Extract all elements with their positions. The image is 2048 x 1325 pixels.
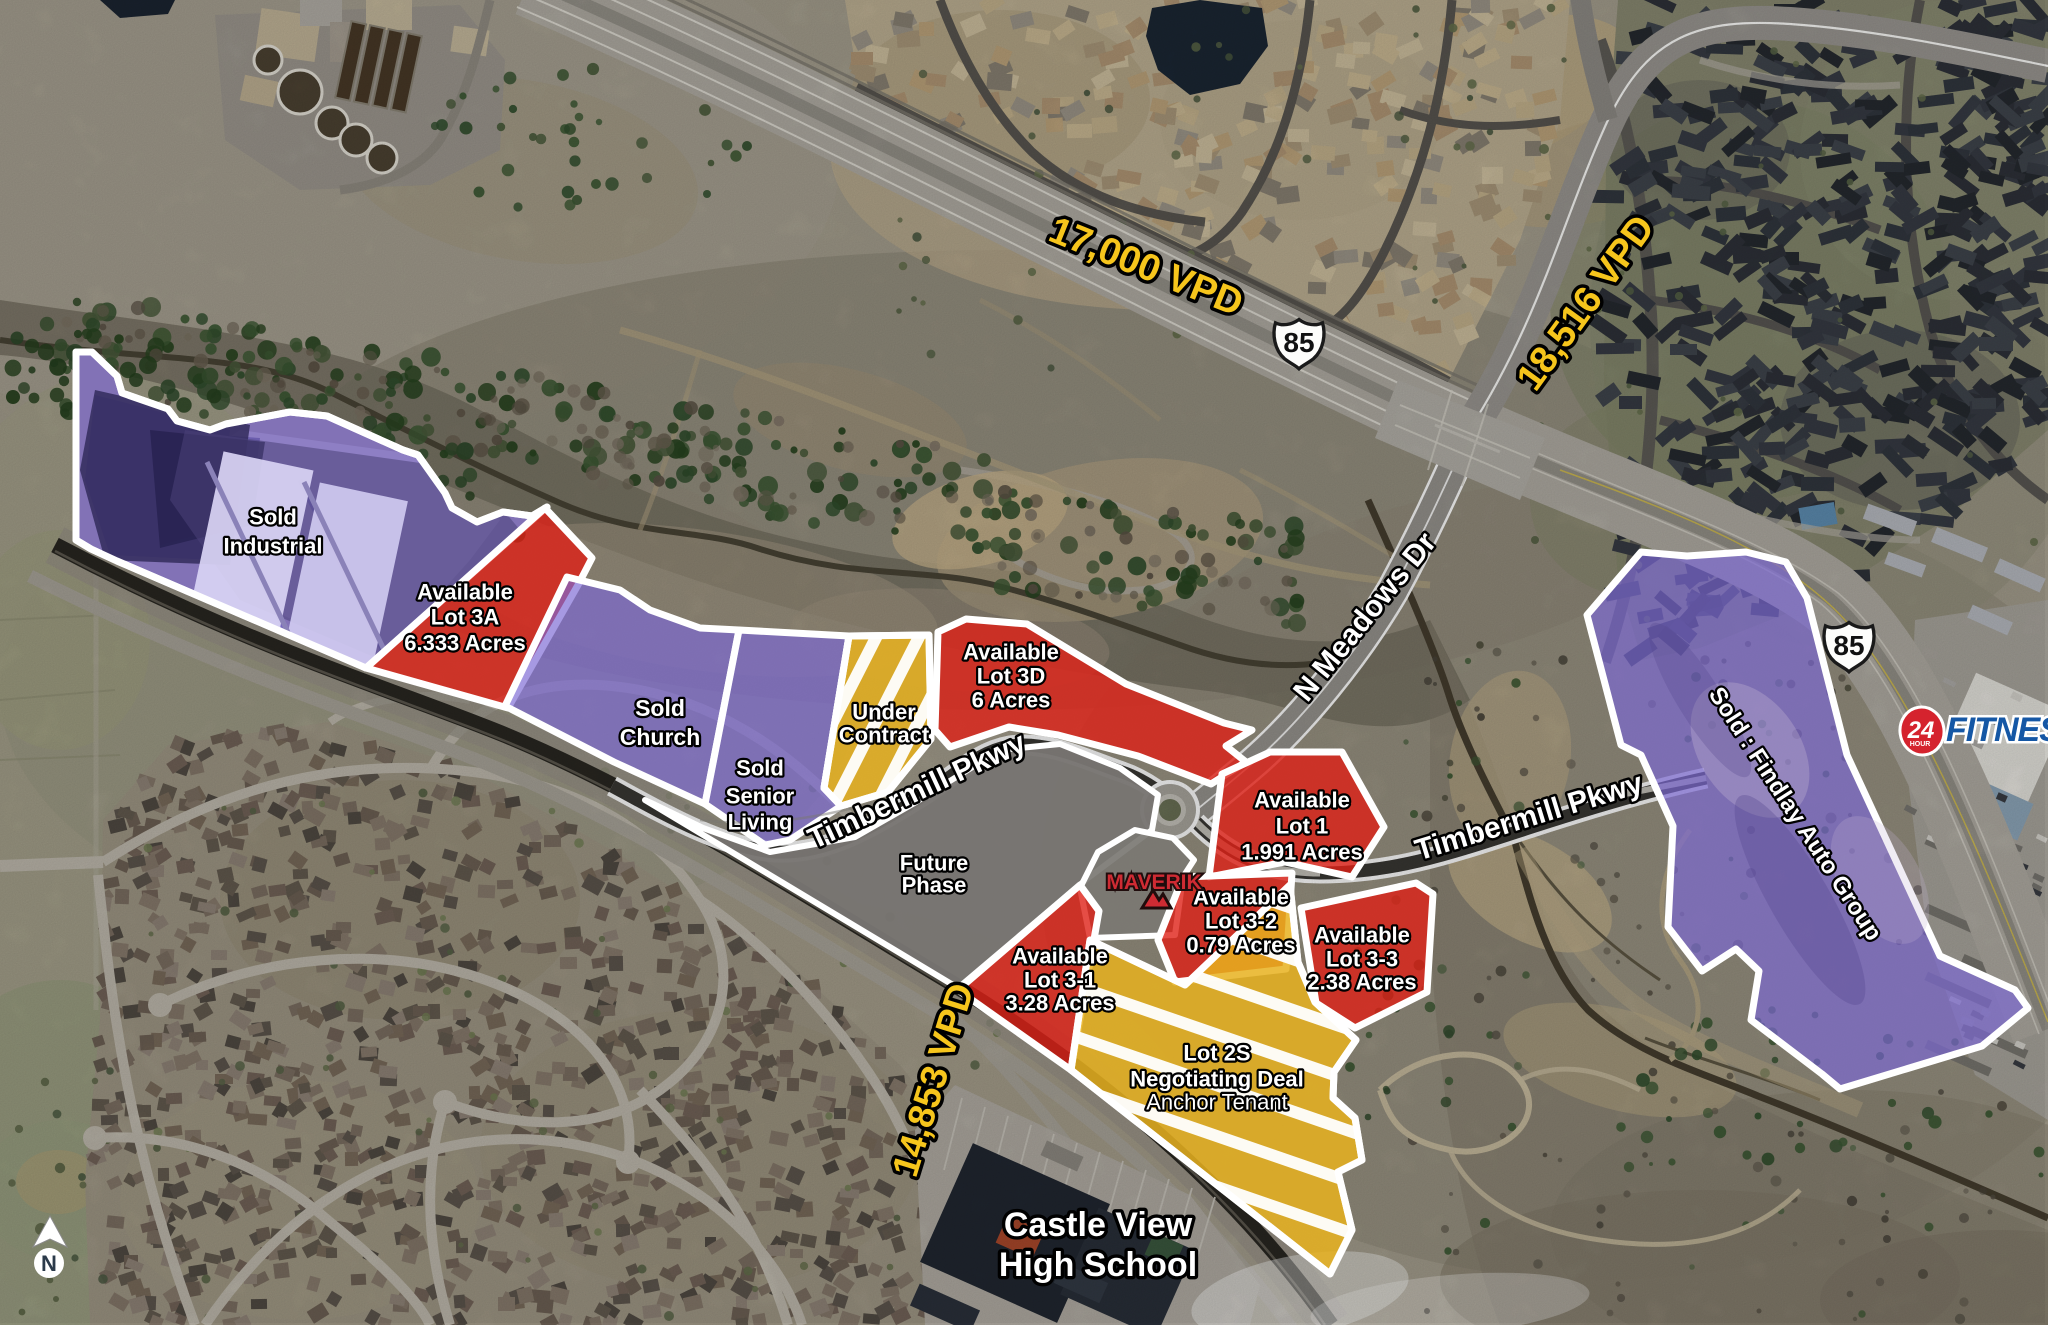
svg-text:Lot 3A: Lot 3A: [431, 605, 500, 630]
svg-text:85: 85: [1283, 327, 1314, 358]
svg-text:Available: Available: [963, 640, 1059, 665]
svg-text:Sold: Sold: [635, 695, 685, 721]
svg-text:1.991 Acres: 1.991 Acres: [1241, 840, 1363, 865]
svg-text:Sold: Sold: [249, 505, 297, 530]
svg-text:Lot 1: Lot 1: [1276, 814, 1329, 839]
svg-text:Industrial: Industrial: [223, 534, 322, 559]
svg-text:HOUR: HOUR: [1910, 741, 1931, 748]
svg-text:Negotiating Deal: Negotiating Deal: [1130, 1067, 1304, 1092]
svg-text:24: 24: [1907, 717, 1935, 744]
svg-text:0.79 Acres: 0.79 Acres: [1186, 933, 1295, 958]
svg-text:Sold: Sold: [736, 756, 784, 781]
svg-text:2.38 Acres: 2.38 Acres: [1307, 970, 1416, 995]
svg-text:Lot 3-2: Lot 3-2: [1205, 909, 1277, 934]
svg-text:Church: Church: [620, 724, 701, 750]
svg-text:85: 85: [1833, 630, 1864, 661]
svg-text:FITNESS: FITNESS: [1946, 711, 2048, 749]
svg-text:Available: Available: [417, 580, 513, 605]
svg-text:Under: Under: [852, 700, 916, 725]
svg-text:3.28 Acres: 3.28 Acres: [1005, 991, 1114, 1016]
svg-text:Available: Available: [1012, 944, 1108, 969]
svg-text:Phase: Phase: [902, 873, 967, 898]
svg-text:Lot 3-3: Lot 3-3: [1326, 947, 1398, 972]
svg-text:N: N: [41, 1251, 57, 1276]
svg-text:Contract: Contract: [839, 723, 930, 748]
svg-text:Available: Available: [1314, 923, 1410, 948]
svg-text:Available: Available: [1254, 788, 1350, 813]
svg-text:6 Acres: 6 Acres: [972, 688, 1051, 713]
svg-text:Available: Available: [1193, 885, 1289, 910]
svg-text:Living: Living: [728, 810, 793, 835]
svg-text:Lot 3D: Lot 3D: [977, 664, 1045, 689]
svg-text:Castle View: Castle View: [1004, 1206, 1193, 1244]
svg-text:Senior: Senior: [726, 784, 795, 809]
svg-text:Anchor Tenant: Anchor Tenant: [1146, 1090, 1287, 1115]
svg-text:Lot 2S: Lot 2S: [1183, 1041, 1250, 1066]
svg-text:High School: High School: [999, 1246, 1197, 1284]
svg-text:Lot 3-1: Lot 3-1: [1024, 968, 1096, 993]
svg-text:6.333 Acres: 6.333 Acres: [404, 631, 526, 656]
